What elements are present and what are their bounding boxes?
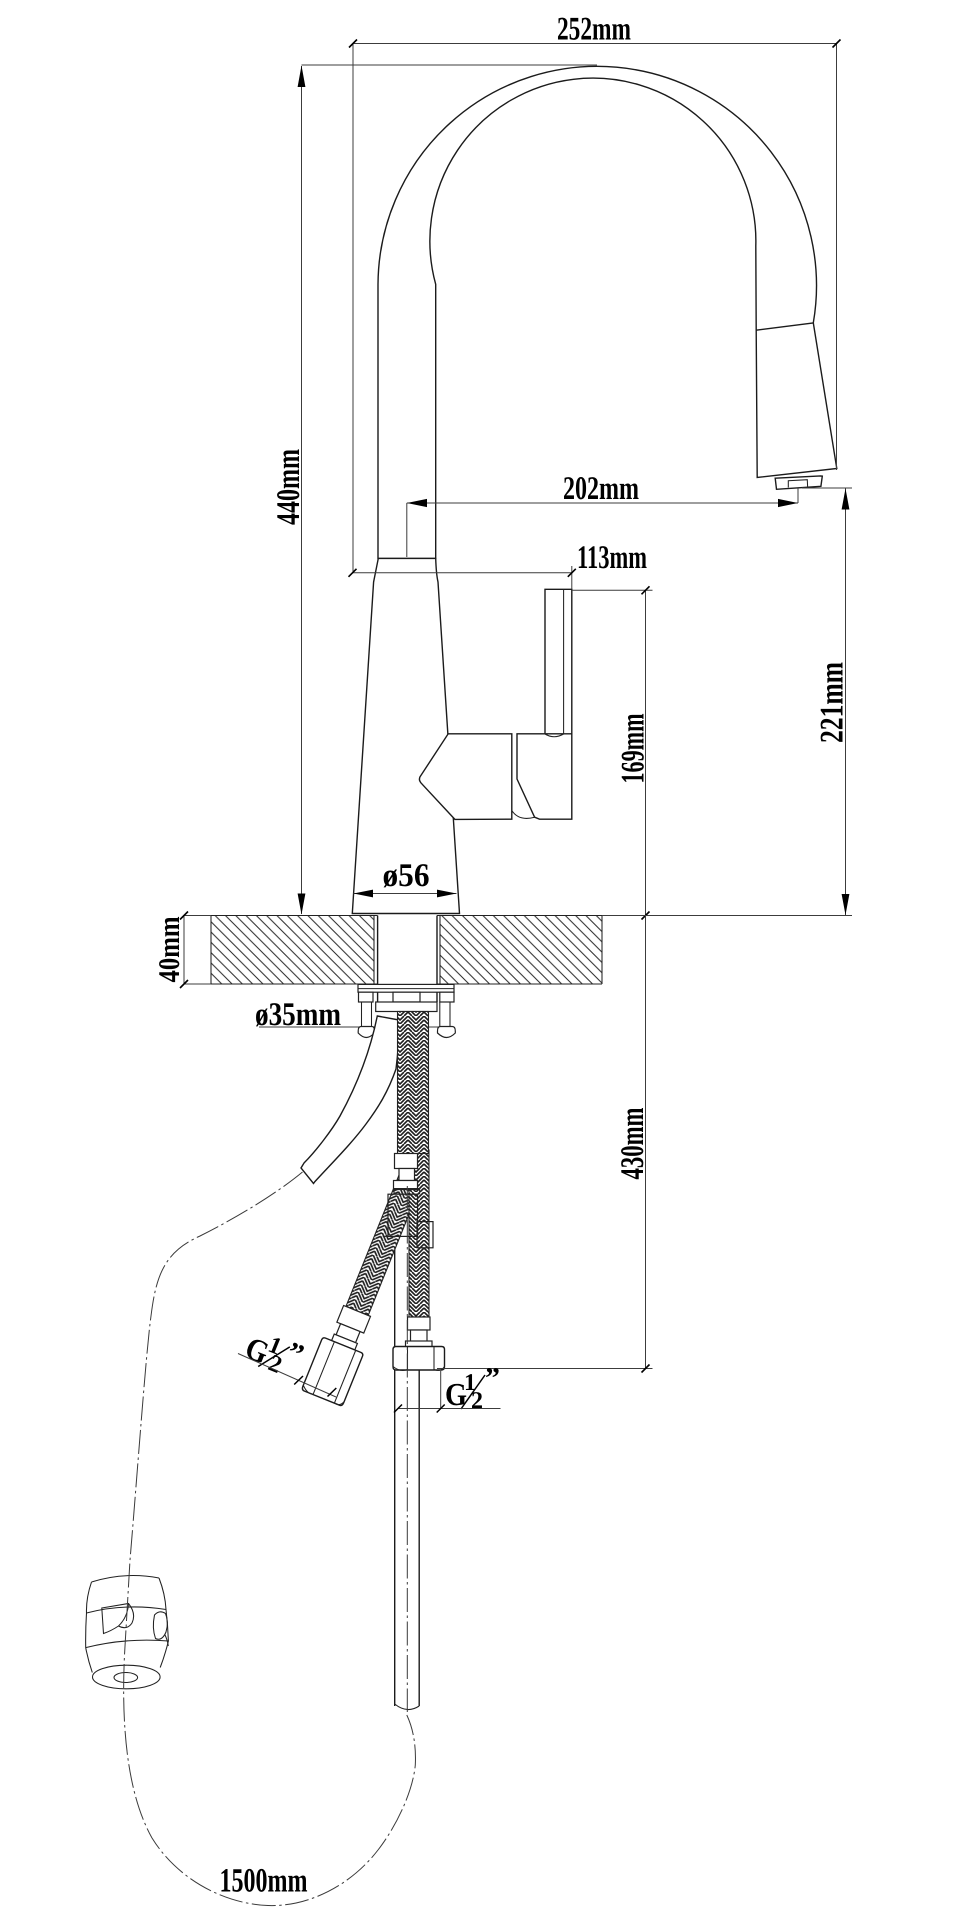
svg-text:1500mm: 1500mm <box>220 1863 308 1900</box>
svg-text:40mm: 40mm <box>153 916 186 982</box>
svg-text:440mm: 440mm <box>271 449 307 525</box>
svg-text:252mm: 252mm <box>557 12 631 48</box>
svg-text:ø35mm: ø35mm <box>255 997 341 1033</box>
svg-text:113mm: 113mm <box>577 540 647 576</box>
svg-text:169mm: 169mm <box>616 714 652 784</box>
svg-text:221mm: 221mm <box>815 662 851 743</box>
svg-text:2: 2 <box>471 1388 483 1414</box>
svg-text:”: ” <box>485 1362 500 1395</box>
svg-text:ø56: ø56 <box>383 858 430 894</box>
svg-text:430mm: 430mm <box>615 1108 651 1180</box>
svg-text:202mm: 202mm <box>563 471 639 507</box>
